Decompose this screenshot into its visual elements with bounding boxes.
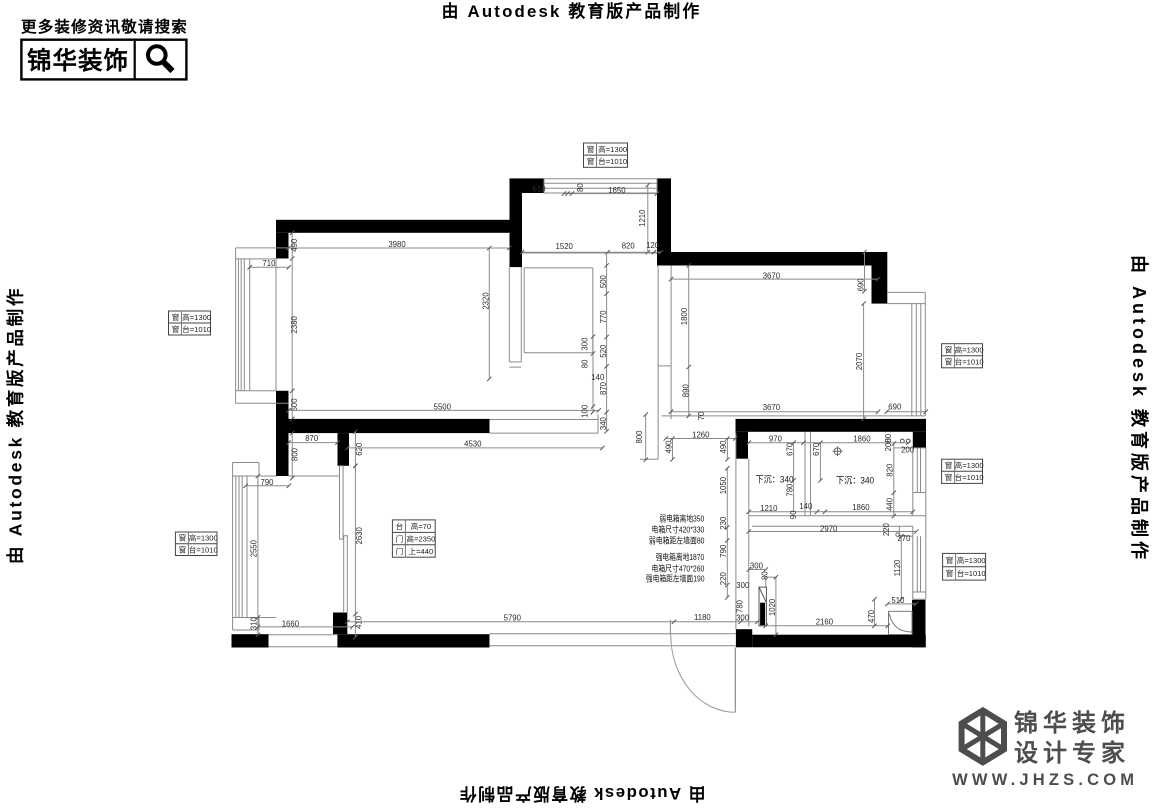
svg-text:台=1010: 台=1010 bbox=[955, 357, 984, 367]
svg-text:2630: 2630 bbox=[355, 526, 364, 544]
svg-text:高=1300: 高=1300 bbox=[955, 460, 984, 470]
svg-text:690: 690 bbox=[888, 402, 902, 411]
svg-text:门: 门 bbox=[396, 546, 404, 556]
svg-text:2550: 2550 bbox=[249, 539, 258, 557]
svg-text:窗: 窗 bbox=[945, 472, 953, 482]
svg-text:高=2350: 高=2350 bbox=[406, 533, 435, 543]
svg-text:窗: 窗 bbox=[945, 345, 953, 355]
svg-text:1860: 1860 bbox=[852, 503, 870, 512]
svg-text:970: 970 bbox=[769, 435, 783, 444]
svg-text:1660: 1660 bbox=[282, 619, 300, 628]
svg-text:窗: 窗 bbox=[587, 144, 595, 154]
svg-text:WWW.JHZS.COM: WWW.JHZS.COM bbox=[952, 771, 1138, 789]
svg-text:由 Autodesk 教育版产品制作: 由 Autodesk 教育版产品制作 bbox=[6, 286, 26, 564]
svg-text:220: 220 bbox=[719, 572, 728, 586]
svg-text:窗: 窗 bbox=[179, 544, 187, 554]
svg-text:710: 710 bbox=[262, 259, 276, 268]
svg-text:台=1010: 台=1010 bbox=[955, 472, 984, 482]
svg-text:弱电箱离地350: 弱电箱离地350 bbox=[659, 514, 704, 524]
svg-text:200: 200 bbox=[884, 438, 893, 452]
svg-text:下沉：340: 下沉：340 bbox=[836, 475, 874, 485]
svg-text:790: 790 bbox=[719, 544, 728, 558]
svg-text:790: 790 bbox=[260, 478, 274, 487]
svg-text:800: 800 bbox=[635, 430, 644, 444]
svg-text:670: 670 bbox=[786, 442, 795, 456]
svg-text:510: 510 bbox=[891, 596, 905, 605]
svg-text:3670: 3670 bbox=[763, 403, 781, 412]
svg-text:窗: 窗 bbox=[179, 533, 187, 543]
svg-text:610: 610 bbox=[532, 184, 546, 193]
svg-text:台=1010: 台=1010 bbox=[598, 156, 627, 166]
svg-text:电箱尺寸470*260: 电箱尺寸470*260 bbox=[652, 563, 705, 573]
svg-text:窗: 窗 bbox=[587, 156, 595, 166]
svg-text:更多装修资讯敬请搜索: 更多装修资讯敬请搜索 bbox=[21, 17, 188, 36]
svg-text:1650: 1650 bbox=[608, 186, 626, 195]
svg-text:高=70: 高=70 bbox=[411, 521, 431, 531]
svg-text:高=1300: 高=1300 bbox=[598, 144, 627, 154]
svg-text:强电箱离地1870: 强电箱离地1870 bbox=[656, 552, 705, 562]
svg-text:770: 770 bbox=[599, 310, 608, 324]
svg-text:440: 440 bbox=[886, 497, 895, 511]
svg-text:3670: 3670 bbox=[763, 271, 781, 280]
svg-text:200: 200 bbox=[901, 445, 915, 454]
svg-text:690: 690 bbox=[857, 278, 866, 292]
svg-text:1520: 1520 bbox=[556, 242, 574, 251]
svg-text:80: 80 bbox=[580, 359, 589, 368]
svg-text:强电箱距左墙面190: 强电箱距左墙面190 bbox=[646, 573, 705, 583]
svg-text:1800: 1800 bbox=[680, 307, 689, 325]
svg-text:窗: 窗 bbox=[945, 460, 953, 470]
svg-text:窗: 窗 bbox=[946, 568, 954, 578]
svg-text:1210: 1210 bbox=[760, 504, 778, 513]
svg-text:上=440: 上=440 bbox=[409, 547, 434, 556]
svg-text:台=1010: 台=1010 bbox=[189, 544, 218, 554]
svg-text:300: 300 bbox=[736, 614, 750, 623]
svg-text:620: 620 bbox=[355, 442, 364, 456]
svg-text:340: 340 bbox=[599, 416, 608, 430]
svg-text:80: 80 bbox=[760, 571, 769, 580]
svg-text:300: 300 bbox=[736, 581, 750, 590]
svg-text:870: 870 bbox=[599, 381, 608, 395]
svg-text:490: 490 bbox=[719, 440, 728, 454]
svg-text:820: 820 bbox=[622, 242, 636, 251]
svg-text:820: 820 bbox=[886, 463, 895, 477]
svg-text:锦华装饰: 锦华装饰 bbox=[27, 46, 129, 75]
svg-text:890: 890 bbox=[682, 384, 691, 398]
svg-text:500: 500 bbox=[599, 274, 608, 288]
svg-text:870: 870 bbox=[305, 434, 319, 443]
svg-text:1050: 1050 bbox=[719, 476, 728, 494]
svg-text:窗: 窗 bbox=[945, 357, 953, 367]
svg-text:设计专家: 设计专家 bbox=[1014, 739, 1130, 767]
svg-text:由 Autodesk 教育版产品制作: 由 Autodesk 教育版产品制作 bbox=[458, 784, 705, 804]
svg-text:70: 70 bbox=[697, 411, 706, 420]
svg-text:220: 220 bbox=[882, 522, 891, 536]
svg-text:2070: 2070 bbox=[855, 352, 864, 370]
svg-text:2380: 2380 bbox=[290, 315, 299, 333]
svg-text:5790: 5790 bbox=[504, 614, 522, 623]
svg-text:门: 门 bbox=[396, 533, 404, 543]
svg-text:80: 80 bbox=[576, 183, 585, 192]
svg-text:弱电箱距左墙面80: 弱电箱距左墙面80 bbox=[649, 536, 705, 546]
svg-text:670: 670 bbox=[812, 442, 821, 456]
svg-text:高=1300: 高=1300 bbox=[182, 312, 211, 322]
svg-text:台=1010: 台=1010 bbox=[182, 324, 211, 334]
svg-text:锦华装饰: 锦华装饰 bbox=[1014, 709, 1130, 737]
svg-text:500: 500 bbox=[290, 398, 299, 412]
svg-text:1180: 1180 bbox=[694, 613, 711, 622]
svg-text:2160: 2160 bbox=[816, 618, 834, 627]
svg-text:3980: 3980 bbox=[388, 240, 406, 249]
svg-text:1120: 1120 bbox=[893, 559, 902, 576]
svg-text:470: 470 bbox=[867, 609, 876, 623]
svg-text:2320: 2320 bbox=[482, 292, 491, 310]
svg-text:800: 800 bbox=[291, 447, 300, 461]
svg-text:490: 490 bbox=[664, 440, 673, 454]
svg-text:140: 140 bbox=[591, 373, 605, 382]
svg-text:300: 300 bbox=[580, 337, 589, 351]
svg-text:300: 300 bbox=[750, 561, 764, 570]
svg-text:台: 台 bbox=[396, 521, 404, 531]
svg-text:窗: 窗 bbox=[172, 324, 180, 334]
svg-text:高=1300: 高=1300 bbox=[957, 555, 986, 565]
svg-text:高=1300: 高=1300 bbox=[955, 345, 984, 355]
svg-text:5500: 5500 bbox=[434, 403, 452, 412]
svg-text:230: 230 bbox=[719, 516, 728, 530]
svg-text:120: 120 bbox=[646, 241, 660, 250]
svg-text:2970: 2970 bbox=[820, 524, 838, 533]
svg-text:1260: 1260 bbox=[692, 431, 710, 440]
svg-text:窗: 窗 bbox=[946, 555, 954, 565]
svg-text:1860: 1860 bbox=[853, 435, 871, 444]
svg-text:520: 520 bbox=[599, 344, 608, 358]
svg-text:100: 100 bbox=[580, 404, 589, 418]
svg-text:下沉：340: 下沉：340 bbox=[756, 474, 794, 484]
svg-text:由 Autodesk 教育版产品制作: 由 Autodesk 教育版产品制作 bbox=[1129, 255, 1150, 563]
svg-text:高=1300: 高=1300 bbox=[189, 533, 218, 543]
svg-text:490: 490 bbox=[290, 238, 299, 252]
svg-text:台=1010: 台=1010 bbox=[957, 568, 986, 578]
svg-text:电箱尺寸420*330: 电箱尺寸420*330 bbox=[652, 525, 705, 535]
svg-text:1210: 1210 bbox=[638, 209, 647, 227]
svg-text:1020: 1020 bbox=[768, 598, 777, 616]
svg-text:140: 140 bbox=[799, 502, 813, 511]
svg-text:窗: 窗 bbox=[172, 312, 180, 322]
svg-text:由 Autodesk 教育版产品制作: 由 Autodesk 教育版产品制作 bbox=[442, 1, 702, 21]
svg-text:90: 90 bbox=[789, 510, 798, 519]
svg-text:780: 780 bbox=[735, 599, 744, 613]
svg-text:4530: 4530 bbox=[464, 440, 482, 449]
